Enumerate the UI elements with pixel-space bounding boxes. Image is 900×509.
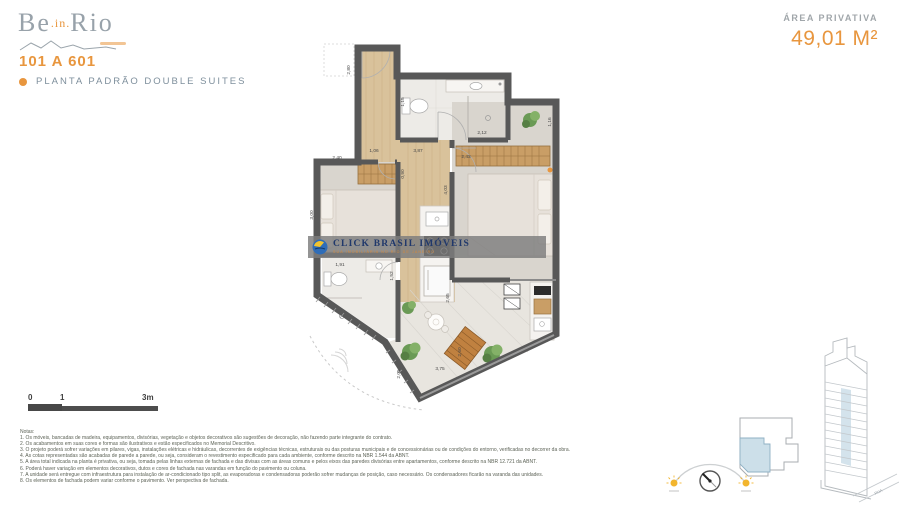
notes-block: Notas: 1. Os móveis, bancadas de madeira… [20,429,675,484]
tower-drawing: RUA [795,328,899,504]
dim-label: 2,40 [332,155,342,161]
mountain-skyline-icon [18,38,118,52]
dim-label: 3,00 [309,210,315,220]
floor-plan-brochure-page: Be.in.Rio 101 A 601 PLANTA PADRÃO DOUBLE… [0,0,900,504]
dim-label: 2,05 [396,369,402,379]
dim-label: 2,65 [445,293,451,303]
bullet-dot-icon [19,78,27,86]
logo-tagline [100,42,126,45]
dim-label: 4,03 [443,185,449,195]
toilet2 [331,273,347,286]
dim-label: 2,80 [346,65,352,75]
scale-bar-segments [28,404,158,411]
watermark-banner: CLICK BRASIL IMÓVEIS SUA IMOBILIÁRIA NO … [308,236,546,258]
gourmet-counter [530,282,554,340]
plan-type-row: PLANTA PADRÃO DOUBLE SUITES [19,76,246,87]
suite2-wardrobe [358,164,396,184]
scale-one-label: 1 [60,393,64,402]
plan-type-label: PLANTA PADRÃO DOUBLE SUITES [36,76,246,87]
logo-in: .in. [51,16,70,30]
floor-plan-drawing: 2,80 1,15 2,12 0,90 1,06 3,87 2,40 2,43 … [300,40,570,420]
street: RUA [853,474,899,502]
shower1-head [499,83,502,86]
brand-logo: Be.in.Rio [18,8,138,57]
note-item-8: 8. Os elementos de fachada podem variar … [20,478,675,484]
dim-label: 2,43 [461,154,471,160]
street-label: RUA [873,487,883,495]
dim-label: 1,16 [547,117,553,127]
dim-label: 2,60 [457,347,463,357]
kitchen-sink [426,212,448,226]
floor-plan: 2,80 1,15 2,12 0,90 1,06 3,87 2,40 2,43 … [300,40,570,420]
toilet1 [410,99,428,113]
scale-bar: 0 1 3m [28,393,160,417]
private-area-box: ÁREA PRIVATIVA 49,01 M² [783,13,878,51]
private-area-label: ÁREA PRIVATIVA [783,13,878,23]
scale-zero-label: 0 [28,393,32,402]
bathroom1-basin [470,82,482,89]
unit-range-label: 101 A 601 [19,53,96,70]
watermark-subtitle: SUA IMOBILIÁRIA NO RIO DE JANEIRO [333,251,470,255]
dim-label: 2,12 [477,130,487,136]
watermark-logo-icon [312,239,328,255]
dim-label: 3,87 [413,148,423,154]
dim-label: 3,75 [435,366,445,372]
grill-door [534,299,551,314]
microwave [534,286,551,295]
compass-needle [700,471,720,491]
private-area-value: 49,01 M² [783,27,878,51]
logo-be: Be [18,8,51,37]
scale-segment-1 [28,404,62,411]
scale-three-label: 3m [142,393,154,402]
bedside-lamp [548,168,553,173]
watermark-title: CLICK BRASIL IMÓVEIS [333,240,470,250]
brand-logo-text: Be.in.Rio [18,8,138,38]
dim-label: 0,90 [400,169,406,179]
dim-label: 1,15 [400,97,406,107]
building-silhouette: RUA [795,328,899,509]
scale-segment-2 [62,406,158,411]
dim-label: 1,91 [335,262,345,268]
logo-rio: Rio [70,8,114,37]
dim-label: 1,06 [369,148,379,154]
dim-label: 1,52 [389,271,395,281]
watermark-text: CLICK BRASIL IMÓVEIS SUA IMOBILIÁRIA NO … [333,240,470,255]
